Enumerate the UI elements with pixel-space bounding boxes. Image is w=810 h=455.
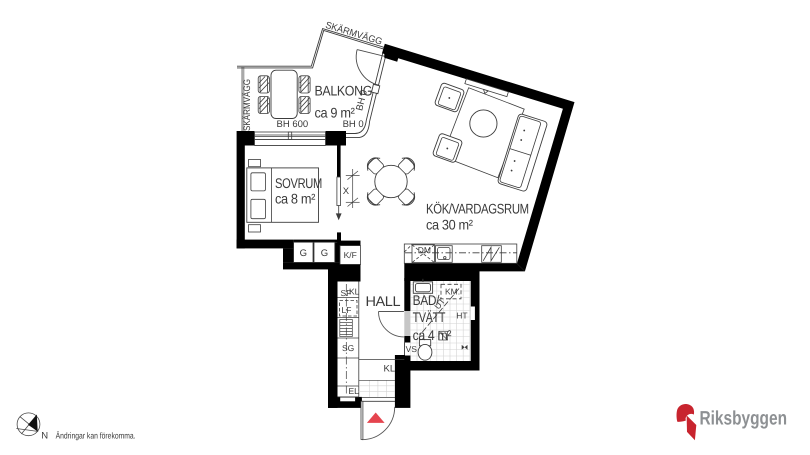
svg-text:N: N [41,431,48,442]
svg-text:KÖK/VARDAGSRUM: KÖK/VARDAGSRUM [426,201,529,217]
svg-text:SOVRUM: SOVRUM [275,175,322,191]
svg-text:KM.: KM. [445,287,460,297]
svg-text:HT: HT [456,311,467,321]
svg-text:VS: VS [406,344,418,354]
svg-text:Riksbyggen: Riksbyggen [700,408,788,430]
svg-text:LF: LF [342,305,352,315]
svg-text:K/F: K/F [344,250,357,260]
svg-text:G: G [300,248,307,259]
svg-text:ca 4 m²: ca 4 m² [413,327,452,343]
svg-text:HALL: HALL [366,293,401,309]
svg-text:SKÄRMVÄGG: SKÄRMVÄGG [242,79,253,131]
svg-text:BAD/: BAD/ [413,292,440,308]
svg-text:Ändringar kan förekomma.: Ändringar kan förekomma. [56,431,136,441]
svg-text:X: X [343,186,350,197]
svg-text:ca 8 m²: ca 8 m² [275,191,316,207]
svg-text:KL: KL [349,287,360,297]
svg-text:TVÄTT: TVÄTT [413,309,446,325]
svg-text:EL: EL [349,386,360,396]
svg-text:BH 0: BH 0 [343,119,364,130]
svg-text:SG: SG [342,343,354,353]
svg-text:KL: KL [384,364,396,375]
svg-text:DM: DM [418,245,431,255]
svg-text:G: G [321,248,328,259]
svg-text:ca 30 m²: ca 30 m² [426,217,473,233]
svg-text:BH 600: BH 600 [277,119,309,130]
